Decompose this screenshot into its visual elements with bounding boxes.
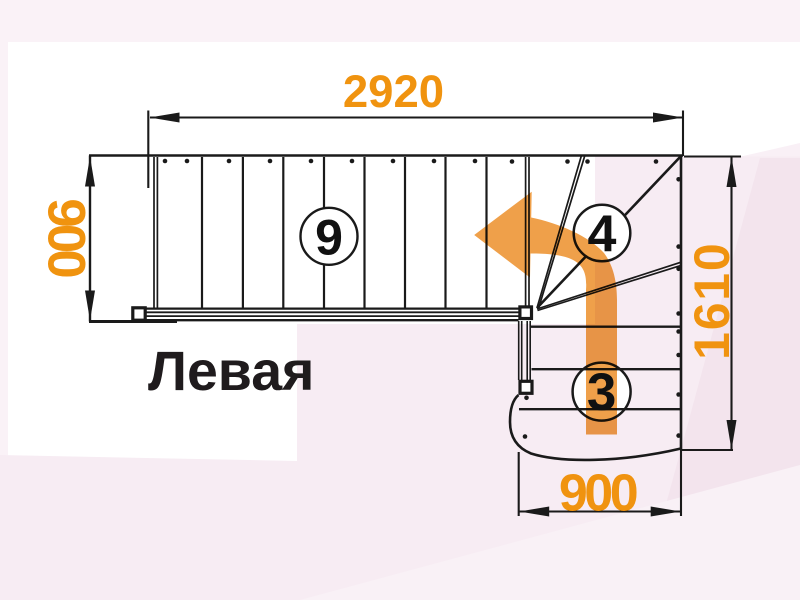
svg-text:4: 4: [588, 205, 617, 263]
svg-text:900: 900: [37, 198, 96, 277]
svg-text:Левая: Левая: [148, 340, 314, 402]
svg-text:900: 900: [559, 465, 637, 523]
svg-text:3: 3: [587, 363, 616, 422]
svg-text:2920: 2920: [343, 66, 444, 117]
svg-text:1610: 1610: [684, 241, 740, 359]
svg-text:9: 9: [315, 209, 343, 265]
